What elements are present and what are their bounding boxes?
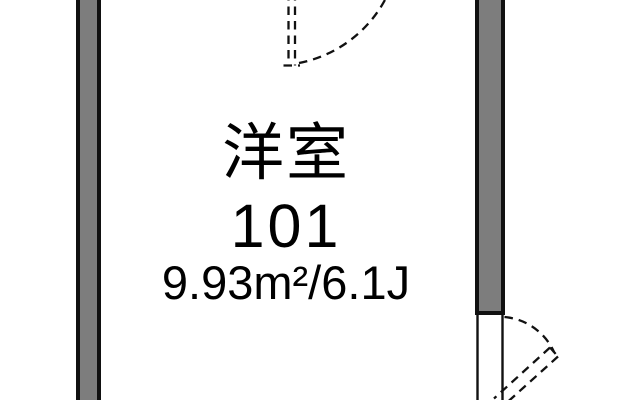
room-type-label: 洋室 xyxy=(106,123,466,185)
left-wall xyxy=(78,0,99,400)
room-number-label: 101 xyxy=(106,196,466,257)
floorplan: 洋室 101 9.93m²/6.1J xyxy=(0,0,640,400)
top-door-leaf xyxy=(284,0,301,66)
room-area-label: 9.93m²/6.1J xyxy=(106,259,466,306)
bottom-door-swing-arc-icon xyxy=(505,317,555,352)
top-door-swing-arc-icon xyxy=(299,0,386,63)
right-wall xyxy=(477,0,503,313)
